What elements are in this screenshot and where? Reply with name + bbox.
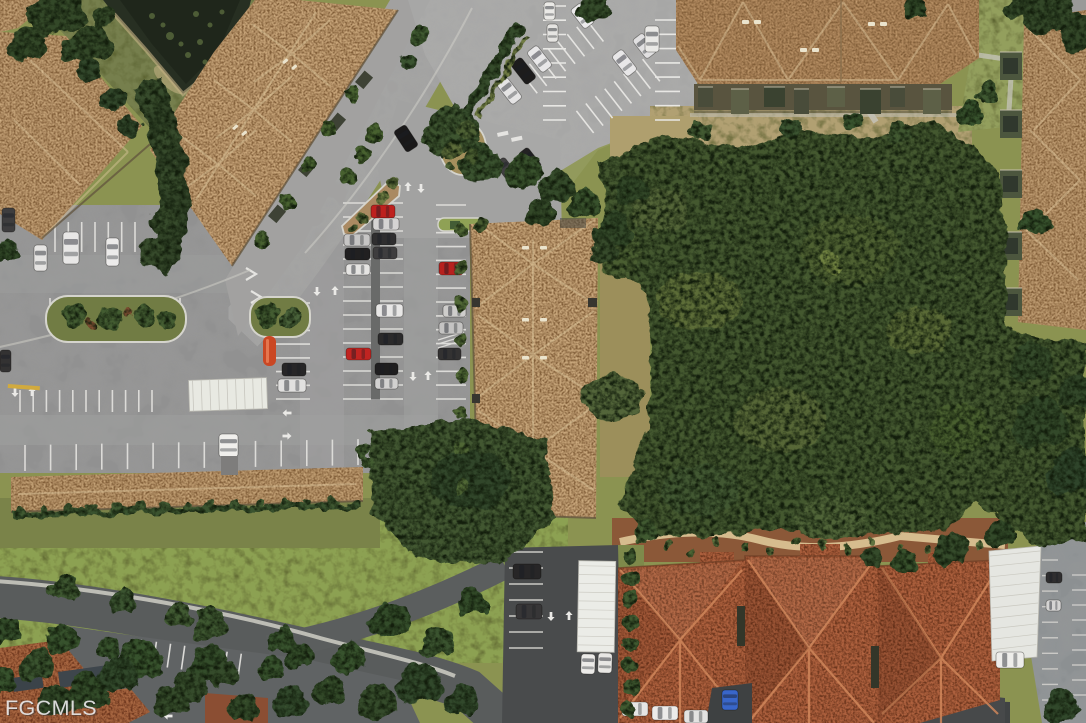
svg-text:FGCMLS: FGCMLS (5, 696, 97, 720)
